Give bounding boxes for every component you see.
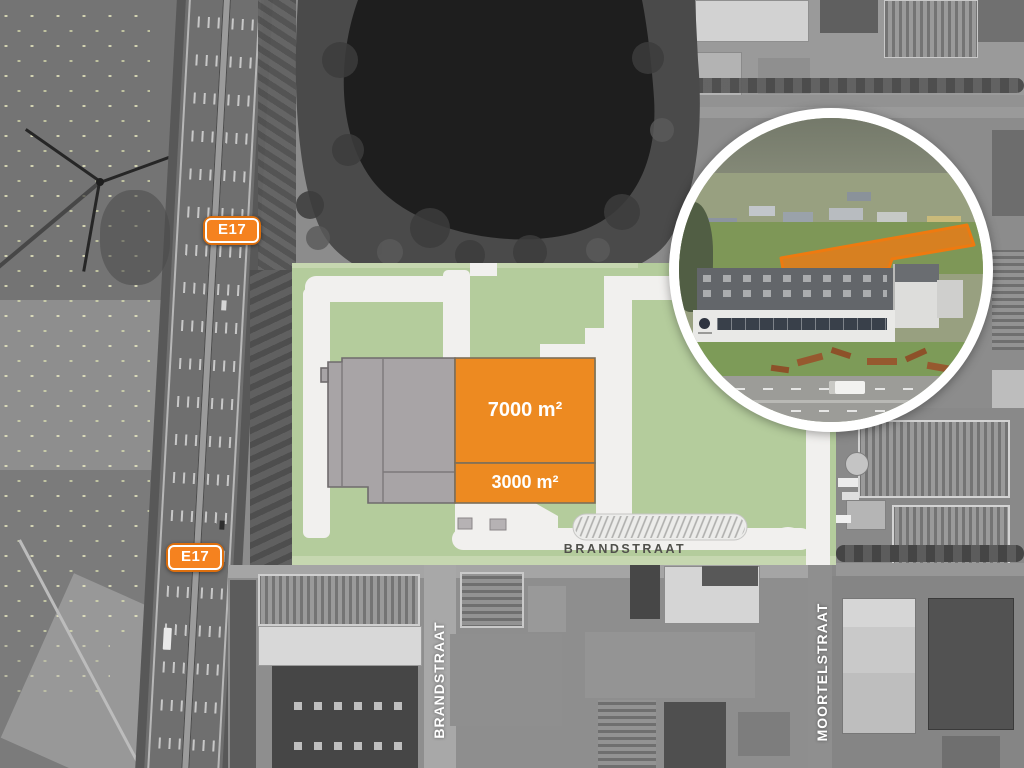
inset-building-wing xyxy=(893,264,939,328)
aerial-site-map: 7000 m² 3000 m² BRANDSTRAAT BRANDSTRAAT … xyxy=(0,0,1024,768)
e17-badge-bottom-text: E17 xyxy=(168,545,222,570)
inset-window-strip xyxy=(717,318,887,330)
moortelstraat-street-label: MOORTELSTRAAT xyxy=(814,603,830,742)
unit-3000-label: 3000 m² xyxy=(455,472,595,493)
inset-truck xyxy=(829,381,865,394)
service-box xyxy=(458,518,472,529)
inset-hedge xyxy=(867,358,897,365)
building-existing xyxy=(321,358,455,503)
e17-badge-top: E17 xyxy=(203,216,261,245)
service-box xyxy=(490,519,506,530)
inset-building-facade xyxy=(693,310,895,342)
e17-badge-bottom: E17 xyxy=(166,543,224,572)
brandstraat-street-label: BRANDSTRAAT xyxy=(431,621,447,738)
inset-building-roof xyxy=(697,268,893,312)
site-green-edge xyxy=(292,263,638,268)
e17-badge-top-text: E17 xyxy=(205,218,259,243)
inset-road xyxy=(679,376,983,422)
inset-logo-icon xyxy=(699,318,710,329)
inset-building-wing xyxy=(937,280,963,318)
unit-7000-label: 7000 m² xyxy=(455,399,595,422)
parking-strip-hatch xyxy=(575,516,745,538)
photo-inset xyxy=(669,108,993,432)
inset-logo-text xyxy=(698,332,712,334)
brandstraat-plan-label: BRANDSTRAAT xyxy=(558,542,692,556)
site-green-edge xyxy=(292,556,836,565)
